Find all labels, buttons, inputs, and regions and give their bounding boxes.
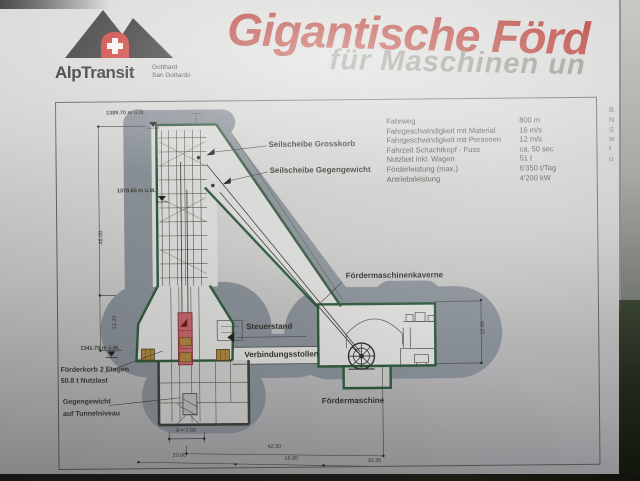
dim-span-b1: 20.00 (159, 453, 199, 459)
shaft-diagram-panel: Fahrweg800 m Fahrgeschwindigkeit mit Mat… (55, 97, 601, 470)
label-connecting-gallery: Verbindungsstollen (244, 349, 318, 359)
label-cage-line2: 50.8 t Nutzlast (61, 378, 108, 385)
label-sheave-main: Seilscheibe Grosskorb (268, 139, 355, 149)
poster-subtitle: für Maschinen un (329, 44, 640, 86)
photo-bottom-shadow (0, 474, 640, 481)
label-cage-line1: Förderkorb 2 Etagen (61, 366, 130, 374)
mine-wagon (216, 349, 229, 360)
cut-off-text-column: B N S w f u (609, 105, 614, 164)
dim-span-b3: 33.35 (354, 458, 394, 464)
dim-span-top: 42.30 (254, 444, 294, 450)
dim-shaft-height: 48.00 (98, 218, 104, 258)
label-counterweight-line2: auf Tunnelniveau (63, 410, 120, 418)
poster-right-margin (621, 0, 640, 310)
dim-span-b2: 16.80 (271, 456, 311, 462)
elevation-tunnel: 1341.70 m ü.M. (80, 345, 119, 351)
label-hoisting-machine: Fördermaschine (322, 396, 384, 406)
spec-table: Fahrweg800 m Fahrgeschwindigkeit mit Mat… (386, 115, 592, 184)
spec-row: Antriebsleistung4'200 kW (387, 172, 592, 184)
label-sheave-counterweight: Seilscheibe Gegengewicht (270, 165, 371, 175)
elevation-mid: 1379.65 m ü.M. (117, 188, 156, 194)
label-machine-cavern: Fördermaschinenkaverne (346, 270, 443, 280)
poster-photo: AlpTransit Gotthard San Gottardo Giganti… (0, 0, 640, 481)
hoist-wheel-icon (348, 343, 374, 369)
dim-shaft-diameter: d = 7.00 (166, 428, 206, 434)
label-counterweight-line1: Gegengewicht (63, 398, 111, 405)
label-control-stand: Steuerstand (246, 322, 292, 331)
photo-edge-shadow (0, 0, 110, 9)
elevation-top: 1389.70 m ü.M. (106, 110, 145, 116)
alptransit-logo: AlpTransit Gotthard San Gottardo (55, 6, 235, 82)
background-behind-poster (619, 300, 640, 481)
logo-brand-text: AlpTransit (55, 63, 134, 83)
dim-cavern-height: 12.90 (480, 308, 486, 348)
logo-region-text: Gotthard San Gottardo (152, 64, 191, 79)
dim-lower-height: 13.20 (112, 302, 118, 342)
poster-edge-line (619, 0, 621, 310)
